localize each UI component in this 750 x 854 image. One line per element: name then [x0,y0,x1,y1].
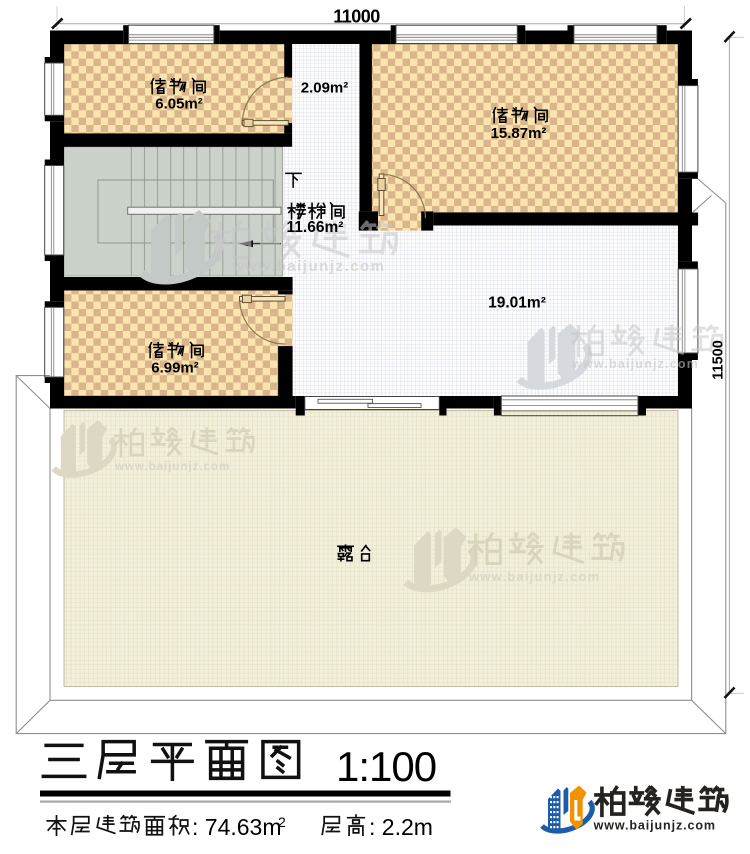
svg-text:2: 2 [278,814,286,830]
svg-text:6.99m²: 6.99m² [151,360,199,377]
svg-text:19.01m²: 19.01m² [488,295,546,312]
svg-text:www.baijunjz.com: www.baijunjz.com [593,819,716,833]
svg-text:: 74.63m: : 74.63m [192,814,282,840]
svg-text:6.05m²: 6.05m² [155,96,203,113]
svg-text:www.baijunjz.com: www.baijunjz.com [114,461,230,473]
svg-text:1:100: 1:100 [336,743,436,790]
svg-text:11500: 11500 [711,340,727,380]
svg-text:: 2.2m: : 2.2m [369,814,433,840]
svg-text:www.baijunjz.com: www.baijunjz.com [468,569,600,584]
svg-text:11.66m²: 11.66m² [287,219,344,236]
svg-text:11000: 11000 [333,7,380,27]
svg-text:www.baijunjz.com: www.baijunjz.com [571,357,699,371]
svg-text:www.baijunjz.com: www.baijunjz.com [231,258,385,275]
svg-text:15.87m²: 15.87m² [491,125,547,142]
svg-text:2.09m²: 2.09m² [301,80,349,97]
